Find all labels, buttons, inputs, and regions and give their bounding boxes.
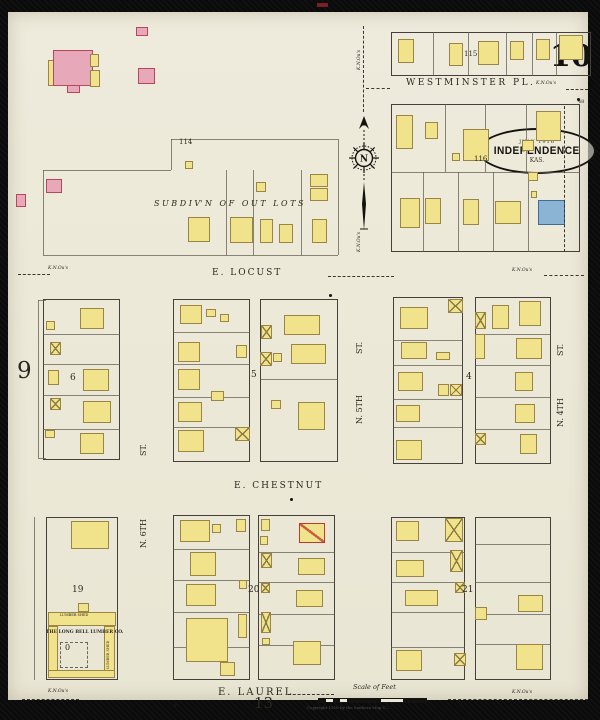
lot-line xyxy=(43,170,171,171)
lot-line xyxy=(556,32,557,76)
lot-line xyxy=(301,170,302,255)
building-yellow xyxy=(518,595,543,612)
building-yellow xyxy=(178,369,200,390)
map-label: 0 xyxy=(65,644,70,652)
building-yellow xyxy=(206,309,216,317)
building-yellow xyxy=(238,614,247,638)
building-yellow xyxy=(188,217,210,242)
building-yellow xyxy=(178,430,204,452)
map-label: E. LAUREL xyxy=(218,688,293,698)
building-yellow xyxy=(298,558,325,575)
building-yellow xyxy=(185,161,193,169)
sanborn-map-scan: 10 9 13 JULY 1916 INDEPENDENCE KAS. N Sc… xyxy=(0,0,600,720)
building-yellow xyxy=(90,54,99,67)
building-shed-x xyxy=(261,612,271,633)
utility-dashed-line xyxy=(288,694,334,695)
building-shed-x xyxy=(450,384,462,396)
building-yellow xyxy=(516,338,542,359)
copyright-line: Copyright 1916 by the Sanborn Map Co. xyxy=(307,705,389,710)
map-label: K.N.Ou's xyxy=(512,691,532,696)
lot-line xyxy=(391,172,580,173)
adjacent-sheet-number-left: 9 xyxy=(17,360,32,383)
map-dot xyxy=(290,498,293,501)
building-yellow xyxy=(520,434,537,454)
lot-line xyxy=(393,340,463,341)
map-label: N. 5TH xyxy=(356,395,364,424)
lot-line xyxy=(458,172,459,252)
building-yellow xyxy=(298,402,325,430)
lot-line xyxy=(38,300,46,301)
building-yellow xyxy=(559,35,583,60)
lot-line xyxy=(43,364,120,365)
building-yellow xyxy=(220,662,235,676)
lot-line xyxy=(393,365,463,366)
lot-line xyxy=(338,139,339,255)
map-label: 116 xyxy=(474,156,487,163)
lot-line xyxy=(171,139,338,140)
building-yellow xyxy=(186,618,228,662)
lot-line xyxy=(445,104,446,172)
building-yellow xyxy=(80,308,104,329)
border-scrap-mark xyxy=(317,3,328,7)
building-yellow xyxy=(398,372,423,391)
building-yellow xyxy=(519,301,541,326)
map-label: WESTMINSTER PL. xyxy=(406,79,535,88)
building-yellow xyxy=(510,41,524,60)
building-yellow xyxy=(48,670,115,678)
lot-line xyxy=(43,170,44,255)
lot-line xyxy=(171,139,172,170)
lot-line xyxy=(391,647,465,648)
building-yellow xyxy=(425,122,438,139)
building-yellow xyxy=(211,391,224,401)
map-label: THE LONG BELL LUMBER CO. xyxy=(46,631,124,636)
lot-line xyxy=(475,544,551,545)
building-yellow xyxy=(83,369,109,391)
building-yellow xyxy=(522,140,534,151)
lot-line xyxy=(38,300,39,458)
building-yellow xyxy=(528,172,538,181)
building-shed-x xyxy=(475,312,486,329)
building-yellow xyxy=(291,344,326,364)
building-yellow xyxy=(239,580,247,589)
lot-line xyxy=(173,332,250,333)
lot-line xyxy=(43,255,338,256)
building-shed-x xyxy=(450,550,463,572)
building-yellow xyxy=(396,115,413,149)
building-yellow xyxy=(515,372,533,391)
building-yellow xyxy=(396,521,419,541)
building-shed-x xyxy=(454,653,466,666)
lot-line xyxy=(393,427,463,428)
lot-line xyxy=(260,379,338,380)
building-yellow xyxy=(536,111,561,141)
building-yellow xyxy=(449,43,463,66)
lot-line xyxy=(173,549,250,550)
building-yellow xyxy=(180,520,210,542)
utility-dashed-line xyxy=(564,106,565,252)
building-shed-x xyxy=(475,433,486,445)
building-yellow xyxy=(396,440,422,460)
building-yellow xyxy=(516,644,543,670)
map-label: K.N.Ou's xyxy=(512,269,532,274)
map-label: 19 xyxy=(72,586,83,595)
building-pink xyxy=(67,85,80,93)
lot-line xyxy=(43,395,120,396)
map-label: 114 xyxy=(179,139,192,146)
compass-rose-icon: N xyxy=(340,112,388,234)
building-yellow xyxy=(78,603,89,612)
building-yellow xyxy=(279,224,293,243)
map-label: K.N.Ou's xyxy=(536,82,556,87)
building-yellow xyxy=(396,560,424,577)
utility-dashed-line xyxy=(448,699,588,700)
lot-line xyxy=(226,170,227,255)
building-blue xyxy=(538,200,565,225)
building-yellow xyxy=(230,217,253,243)
building-yellow xyxy=(463,199,479,225)
building-yellow xyxy=(312,219,327,243)
building-yellow xyxy=(262,638,270,645)
utility-dashed-line xyxy=(366,88,390,89)
map-label: 20 xyxy=(248,586,259,595)
building-yellow xyxy=(236,519,246,532)
lot-line xyxy=(493,172,494,252)
building-yellow xyxy=(190,552,216,576)
building-yellow xyxy=(256,182,266,192)
building-yellow xyxy=(531,191,537,198)
building-yellow xyxy=(178,342,200,362)
map-label: 6 xyxy=(70,374,76,383)
building-shed-x xyxy=(50,398,61,410)
lot-line xyxy=(475,334,551,335)
utility-dashed-line xyxy=(363,26,364,112)
building-yellow xyxy=(492,305,509,329)
map-paper: 10 9 13 JULY 1916 INDEPENDENCE KAS. N Sc… xyxy=(8,12,588,700)
building-pink xyxy=(46,179,62,193)
map-label: ST. xyxy=(557,344,565,356)
building-shed-x xyxy=(235,427,250,441)
building-shed-x xyxy=(445,518,463,542)
lot-line xyxy=(391,582,465,583)
building-yellow xyxy=(80,433,104,454)
svg-text:N: N xyxy=(360,155,368,165)
lot-line xyxy=(38,458,46,459)
map-label: S U B D I V' N O F O U T L O T S xyxy=(154,200,304,208)
building-yellow xyxy=(212,524,221,533)
lot-line xyxy=(506,32,507,76)
lot-line xyxy=(391,612,465,613)
building-shed-x xyxy=(448,299,463,313)
building-yellow xyxy=(71,521,109,549)
lot-line xyxy=(433,32,434,76)
lot-line xyxy=(475,582,551,583)
building-yellow xyxy=(438,384,449,396)
utility-dashed-line xyxy=(22,699,79,700)
building-yellow xyxy=(186,584,216,606)
building-pink xyxy=(53,50,93,86)
building-yellow xyxy=(261,519,270,531)
map-label: K.N.Ou's xyxy=(48,690,68,695)
lot-line xyxy=(253,170,254,255)
building-pink xyxy=(16,194,26,207)
building-yellow xyxy=(452,153,460,161)
building-yellow xyxy=(400,198,420,228)
building-red-hatched xyxy=(299,523,325,543)
lot-line xyxy=(532,32,533,76)
building-yellow xyxy=(475,334,485,359)
building-yellow xyxy=(260,219,273,243)
scale-bar xyxy=(318,698,427,703)
building-shed-x xyxy=(260,352,272,366)
building-yellow xyxy=(293,641,321,665)
building-yellow xyxy=(48,370,59,385)
building-yellow xyxy=(90,70,100,87)
lot-line xyxy=(526,104,527,172)
building-yellow xyxy=(475,607,487,620)
adjacent-sheet-number-bottom: 13 xyxy=(254,696,273,711)
map-label: 21 xyxy=(462,586,473,595)
map-label: K.N.Ou's xyxy=(358,50,363,70)
lot-line xyxy=(393,399,463,400)
lot-line xyxy=(528,172,529,252)
lot-line xyxy=(423,172,424,252)
building-yellow xyxy=(398,39,414,63)
building-shed-x xyxy=(261,325,272,339)
map-label: ST. xyxy=(140,444,148,456)
map-label: 5 xyxy=(251,371,257,380)
map-label: LUMBER SHED xyxy=(107,641,111,669)
lot-line xyxy=(173,612,250,613)
map-dot xyxy=(385,706,388,709)
lot-line xyxy=(475,429,551,430)
building-yellow xyxy=(273,353,282,362)
building-yellow xyxy=(400,307,428,329)
map-dot xyxy=(329,294,332,297)
map-label: 48 xyxy=(578,100,584,105)
building-shed-x xyxy=(261,553,272,568)
map-dot xyxy=(174,704,177,707)
building-yellow xyxy=(220,314,229,322)
map-label: K.N.Ou's xyxy=(358,232,363,252)
scale-label: Scale of Feet xyxy=(353,683,396,691)
building-yellow xyxy=(45,430,55,438)
building-yellow xyxy=(180,305,202,324)
map-label: N. 4TH xyxy=(557,398,565,427)
building-yellow xyxy=(296,590,323,607)
map-label: 4 xyxy=(466,373,472,382)
building-yellow xyxy=(495,201,521,224)
map-label: E. LOCUST xyxy=(212,269,282,278)
lot-line xyxy=(173,364,250,365)
building-shed-x xyxy=(261,583,270,593)
building-yellow xyxy=(515,404,535,423)
building-pink xyxy=(138,68,155,84)
lot-line xyxy=(34,517,35,680)
map-label: 115 xyxy=(464,51,477,58)
building-yellow xyxy=(260,536,268,545)
map-label: LUMBER SHED xyxy=(60,614,88,618)
utility-dashed-line xyxy=(18,274,50,275)
building-yellow xyxy=(310,188,328,201)
lot-line xyxy=(43,334,120,335)
utility-dashed-line xyxy=(566,89,588,90)
building-yellow xyxy=(178,402,202,422)
building-pink xyxy=(136,27,148,36)
building-yellow xyxy=(536,39,550,60)
building-yellow xyxy=(83,401,111,423)
building-yellow xyxy=(478,41,499,65)
building-yellow xyxy=(236,345,247,358)
map-label: N. 6TH xyxy=(140,519,148,548)
lot-line xyxy=(475,397,551,398)
building-yellow xyxy=(271,400,281,409)
building-yellow xyxy=(310,174,328,187)
building-shed-x xyxy=(50,342,61,355)
lot-line xyxy=(475,365,551,366)
map-label: ST. xyxy=(356,342,364,354)
utility-dashed-line xyxy=(544,275,584,276)
building-yellow xyxy=(284,315,320,335)
building-yellow xyxy=(436,352,450,360)
map-label: E. CHESTNUT xyxy=(234,482,323,491)
building-yellow xyxy=(401,342,427,359)
building-yellow xyxy=(46,321,55,330)
utility-dashed-line xyxy=(328,276,394,277)
map-label: K.N.Ou's xyxy=(48,267,68,272)
building-yellow xyxy=(425,198,441,224)
building-yellow xyxy=(396,405,420,422)
building-yellow xyxy=(405,590,438,606)
building-yellow xyxy=(396,650,422,671)
